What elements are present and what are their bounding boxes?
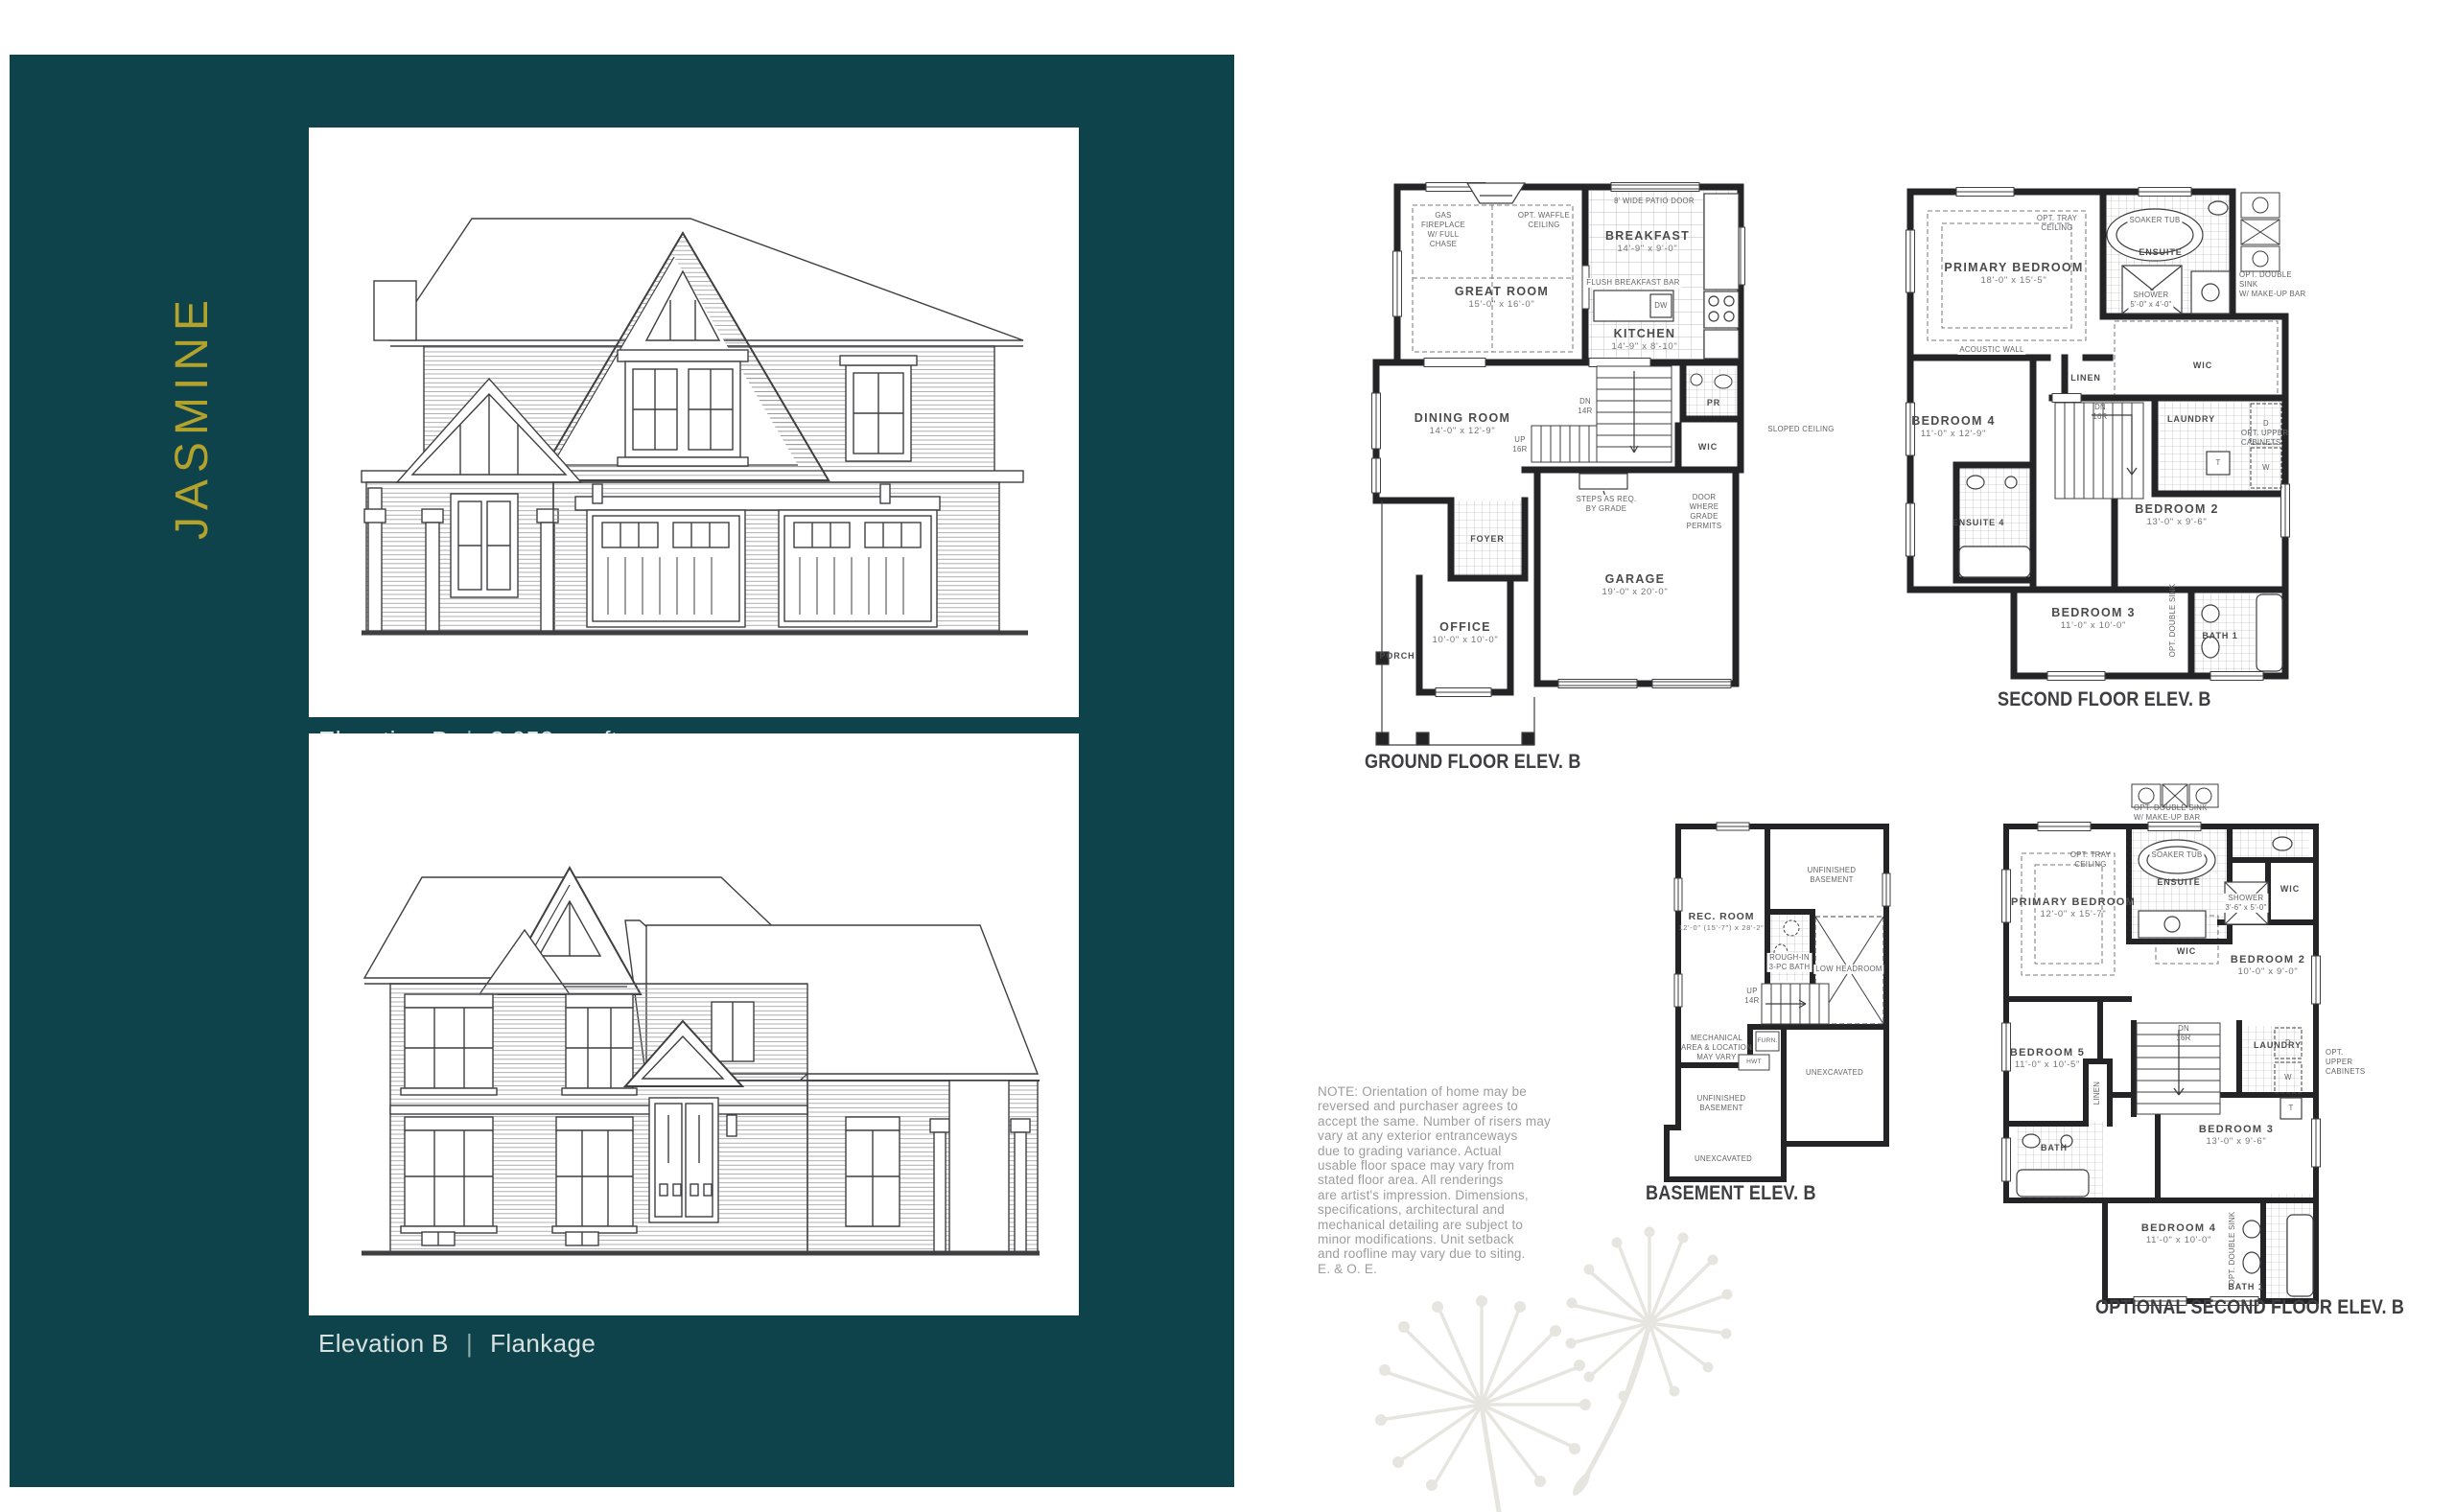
room-label-unfinished-upper: UNFINISHED BASEMENT xyxy=(1808,866,1857,885)
room-dims: 11'-0" x 12'-9" xyxy=(1911,429,1995,439)
room-dims: 13'-0" x 9'-6" xyxy=(2199,1136,2274,1147)
room-name: FOYER xyxy=(1470,534,1505,544)
room-name: LINEN xyxy=(2070,373,2101,383)
room-label-ensuite: ENSUITE xyxy=(2139,247,2182,257)
room-name: REC. ROOM xyxy=(1678,911,1764,922)
room-name: WIC xyxy=(2193,361,2212,370)
room-name: ENSUITE xyxy=(2139,247,2182,257)
note-line: usable floor space may vary from xyxy=(1318,1158,1551,1173)
room-label-wic: WIC xyxy=(2193,361,2212,370)
room-label-bedroom-4: BEDROOM 4 11'-0" x 12'-9" xyxy=(1911,414,1995,439)
annotation-gas-fireplace: GAS FIREPLACE W/ FULL CHASE xyxy=(1421,211,1465,250)
room-label-ensuite: ENSUITE xyxy=(2157,877,2200,887)
annotation-dryer: D xyxy=(2285,1038,2291,1048)
room-dims: 13'-0" x 9'-6" xyxy=(2135,517,2218,527)
shower-dims: 5'-0" x 4'-0" xyxy=(2130,300,2171,309)
shower-name: SHOWER xyxy=(2229,894,2264,902)
annotation-double-sink: OPT. DOUBLE SINK W/ MAKE-UP BAR xyxy=(2239,270,2306,299)
annotation-waffle-ceiling: OPT. WAFFLE CEILING xyxy=(1518,211,1570,230)
room-name: WIC xyxy=(2177,946,2196,956)
caption-separator: | xyxy=(466,1329,473,1358)
room-name: LAUNDRY xyxy=(2167,414,2215,424)
room-name: PRIMARY BEDROOM xyxy=(2011,896,2136,908)
annotation-soaker-tub: SOAKER TUB xyxy=(2127,216,2182,225)
room-label-unexcavated-right: UNEXCAVATED xyxy=(1806,1068,1863,1078)
room-label-rec-room: REC. ROOM 12'-0" (15'-7") x 28'-2" xyxy=(1678,911,1764,932)
room-name: GREAT ROOM xyxy=(1455,285,1549,298)
room-label-bedroom-3: BEDROOM 3 13'-0" x 9'-6" xyxy=(2199,1124,2274,1147)
annotation-dishwasher: DW xyxy=(1654,301,1668,311)
room-dims: 14'-9" x 8'-10" xyxy=(1612,341,1678,352)
annotation-door-grade: DOOR WHERE GRADE PERMITS xyxy=(1687,493,1722,532)
room-name: LAUNDRY xyxy=(2254,1040,2302,1050)
room-name: BREAKFAST xyxy=(1605,229,1690,243)
room-name: WIC xyxy=(2280,884,2300,894)
annotation-stairs-up: UP 16R xyxy=(1512,435,1527,454)
annotation-tray-ceiling: OPT. TRAY CEILING xyxy=(2070,850,2111,870)
annotation-upper-cabinets: OPT. UPPER CABINETS xyxy=(2241,429,2288,448)
optional-second-floor-plan: PRIMARY BEDROOM 12'-0" x 15'-7" BEDROOM … xyxy=(1995,779,2359,1315)
second-floor-plan: PRIMARY BEDROOM 18'-0" x 15'-5" BEDROOM … xyxy=(1904,177,2306,700)
room-dims: 10'-0" x 10'-0" xyxy=(1433,635,1499,645)
annotation-steps-grade: STEPS AS REQ. BY GRADE xyxy=(1575,495,1639,514)
room-label-laundry: LAUNDRY xyxy=(2167,414,2215,424)
annotation-sloped-ceiling: SLOPED CEILING xyxy=(1767,425,1834,434)
note-line: accept the same. Number of risers may xyxy=(1318,1114,1551,1128)
annotation-rough-in-bath: ROUGH-IN 3-PC BATH xyxy=(1767,953,1812,972)
basement-plan: REC. ROOM 12'-0" (15'-7") x 28'-2" UNFIN… xyxy=(1664,821,1923,1204)
room-label-garage: GARAGE 19'-0" x 20'-0" xyxy=(1602,572,1669,597)
room-label-unfinished-lower: UNFINISHED BASEMENT xyxy=(1697,1094,1746,1113)
annotation-dryer: D xyxy=(2263,419,2269,429)
ground-floor-title: GROUND FLOOR ELEV. B xyxy=(1365,751,1581,774)
room-dims: 11'-0" x 10'-0" xyxy=(2051,620,2135,631)
room-name: PORCH xyxy=(1379,651,1415,661)
annotation-tub-t: T xyxy=(2288,1104,2293,1113)
annotation-tray-ceiling: OPT. TRAY CEILING xyxy=(2037,214,2077,233)
room-label-ensuite-4: ENSUITE 4 xyxy=(1952,518,2005,527)
shower-name: SHOWER xyxy=(2134,291,2169,299)
annotation-furnace: FURN. xyxy=(1757,1037,1777,1045)
room-dims: 19'-0" x 20'-0" xyxy=(1602,587,1669,597)
note-line: reversed and purchaser agrees to xyxy=(1318,1099,1551,1113)
room-label-wic-center: WIC xyxy=(2177,946,2196,956)
annotation-tub-t: T xyxy=(2215,458,2220,468)
room-dims: 15'-0" x 16'-0" xyxy=(1455,299,1549,310)
room-label-foyer: FOYER xyxy=(1470,534,1505,544)
room-dims: 12'-0" x 15'-7" xyxy=(2011,909,2136,919)
elevation-flankage-caption: Elevation B|Flankage xyxy=(318,1329,596,1359)
annotation-acoustic-wall: ACOUSTIC WALL xyxy=(1957,345,2025,355)
room-dims: 18'-0" x 15'-5" xyxy=(1944,275,2083,286)
model-name-title: JASMINE xyxy=(166,223,219,540)
room-name: BEDROOM 2 xyxy=(2231,954,2305,965)
room-name: BEDROOM 2 xyxy=(2135,502,2218,516)
room-label-porch: PORCH xyxy=(1379,651,1415,661)
room-name: OFFICE xyxy=(1433,620,1499,634)
room-label-laundry: LAUNDRY xyxy=(2254,1040,2302,1050)
ground-floor-plan: GREAT ROOM 15'-0" x 16'-0" BREAKFAST 14'… xyxy=(1367,174,1779,767)
annotation-stairs-down: DN 16R xyxy=(2093,403,2107,422)
room-label-unexcavated-lower: UNEXCAVATED xyxy=(1695,1154,1752,1164)
room-dims: 11'-0" x 10'-0" xyxy=(2141,1235,2216,1245)
annotation-washer: W xyxy=(2262,463,2270,473)
room-label-pr: PR xyxy=(1707,398,1720,407)
annotation-soaker-tub: SOAKER TUB xyxy=(2149,850,2204,860)
room-label-bedroom-4: BEDROOM 4 11'-0" x 10'-0" xyxy=(2141,1222,2216,1245)
note-line: stated floor area. All renderings xyxy=(1318,1173,1551,1187)
annotation-patio-door: 8' WIDE PATIO DOOR xyxy=(1614,197,1695,206)
room-dims: 14'-9" x 9'-0" xyxy=(1605,244,1690,254)
annotation-double-sink-vertical: OPT. DOUBLE SINK xyxy=(2168,584,2178,658)
shower-dims: 3'-6" x 5'-0" xyxy=(2225,903,2266,912)
room-name: BATH xyxy=(2041,1143,2068,1152)
dandelion-decoration xyxy=(1343,1198,1784,1512)
annotation-shower: SHOWER5'-0" x 4'-0" xyxy=(2128,291,2173,310)
note-line: vary at any exterior entranceways xyxy=(1318,1128,1551,1143)
room-label-bedroom-2: BEDROOM 2 10'-0" x 9'-0" xyxy=(2231,954,2305,977)
room-name: BEDROOM 3 xyxy=(2199,1124,2274,1135)
annotation-stairs-down: DN 16R xyxy=(2176,1024,2190,1043)
room-name: WIC xyxy=(1698,442,1718,452)
room-label-bedroom-3: BEDROOM 3 11'-0" x 10'-0" xyxy=(2051,606,2135,631)
room-label-great-room: GREAT ROOM 15'-0" x 16'-0" xyxy=(1455,285,1549,310)
annotation-stairs-down: DN 14R xyxy=(1578,397,1592,416)
room-label-primary-bedroom: PRIMARY BEDROOM 18'-0" x 15'-5" xyxy=(1944,261,2083,286)
annotation-double-sink-vertical: OPT. DOUBLE SINK xyxy=(2228,1212,2237,1286)
annotation-breakfast-bar: FLUSH BREAKFAST BAR xyxy=(1584,278,1681,288)
room-label-office: OFFICE 10'-0" x 10'-0" xyxy=(1433,620,1499,645)
room-label-bath-1: BATH 1 xyxy=(2202,631,2237,640)
room-label-wic: WIC xyxy=(1698,442,1718,452)
room-label-linen: LINEN xyxy=(2093,1082,2102,1105)
room-name: BEDROOM 5 xyxy=(2010,1047,2085,1058)
room-name: BATH 1 xyxy=(2202,631,2237,640)
optional-second-floor-title: OPTIONAL SECOND FLOOR ELEV. B xyxy=(2095,1296,2404,1319)
flankage-elevation-drawing xyxy=(309,733,1079,1315)
room-name: PR xyxy=(1707,398,1720,407)
note-line: NOTE: Orientation of home may be xyxy=(1318,1084,1551,1099)
caption-name: Elevation B xyxy=(318,1329,449,1358)
room-label-kitchen: KITCHEN 14'-9" x 8'-10" xyxy=(1612,327,1678,352)
note-line: due to grading variance. Actual xyxy=(1318,1144,1551,1158)
room-name: ENSUITE 4 xyxy=(1952,518,2005,527)
front-elevation-drawing xyxy=(309,128,1079,717)
elevation-flankage-card xyxy=(309,733,1079,1315)
annotation-hwt: HWT xyxy=(1746,1058,1762,1066)
room-label-dining: DINING ROOM 14'-0" x 12'-9" xyxy=(1415,411,1510,436)
room-name: KITCHEN xyxy=(1612,327,1678,340)
second-floor-title: SECOND FLOOR ELEV. B xyxy=(1998,688,2211,711)
caption-detail: Flankage xyxy=(490,1329,596,1358)
room-label-bedroom-2: BEDROOM 2 13'-0" x 9'-6" xyxy=(2135,502,2218,527)
annotation-upper-cabinets: OPT. UPPER CABINETS xyxy=(2326,1048,2365,1077)
room-label-bedroom-5: BEDROOM 5 11'-0" x 10'-5" xyxy=(2010,1047,2085,1070)
annotation-washer: W xyxy=(2284,1073,2292,1082)
room-name: DINING ROOM xyxy=(1415,411,1510,425)
room-label-wic-right: WIC xyxy=(2280,884,2300,894)
room-name: GARAGE xyxy=(1602,572,1669,586)
room-label-linen: LINEN xyxy=(2070,373,2101,383)
annotation-double-sink: OPT. DOUBLE SINK W/ MAKE-UP BAR xyxy=(2134,803,2208,823)
room-name: BEDROOM 3 xyxy=(2051,606,2135,619)
room-label-primary-bedroom: PRIMARY BEDROOM 12'-0" x 15'-7" xyxy=(2011,896,2136,919)
brochure-page: JASMINE xyxy=(0,0,2455,1512)
elevation-front-card xyxy=(309,128,1079,717)
room-dims: 12'-0" (15'-7") x 28'-2" xyxy=(1678,923,1764,932)
room-name: ENSUITE xyxy=(2157,877,2200,887)
room-dims: 11'-0" x 10'-5" xyxy=(2010,1059,2085,1070)
annotation-low-headroom: LOW HEADROOM xyxy=(1813,965,1883,974)
annotation-shower: SHOWER3'-6" x 5'-0" xyxy=(2223,894,2268,913)
room-name: BEDROOM 4 xyxy=(2141,1222,2216,1234)
ground-floor-plan-drawing xyxy=(1367,174,1779,767)
room-label-bath: BATH xyxy=(2041,1143,2068,1152)
room-dims: 14'-0" x 12'-9" xyxy=(1415,426,1510,436)
room-dims: 10'-0" x 9'-0" xyxy=(2231,966,2305,977)
room-name: BEDROOM 4 xyxy=(1911,414,1995,428)
annotation-mechanical: MECHANICAL AREA & LOCATION MAY VARY xyxy=(1681,1034,1752,1062)
basement-plan-drawing xyxy=(1664,821,1923,1204)
room-label-breakfast: BREAKFAST 14'-9" x 9'-0" xyxy=(1605,229,1690,254)
annotation-stairs-up: UP 14R xyxy=(1744,987,1759,1006)
room-name: PRIMARY BEDROOM xyxy=(1944,261,2083,274)
